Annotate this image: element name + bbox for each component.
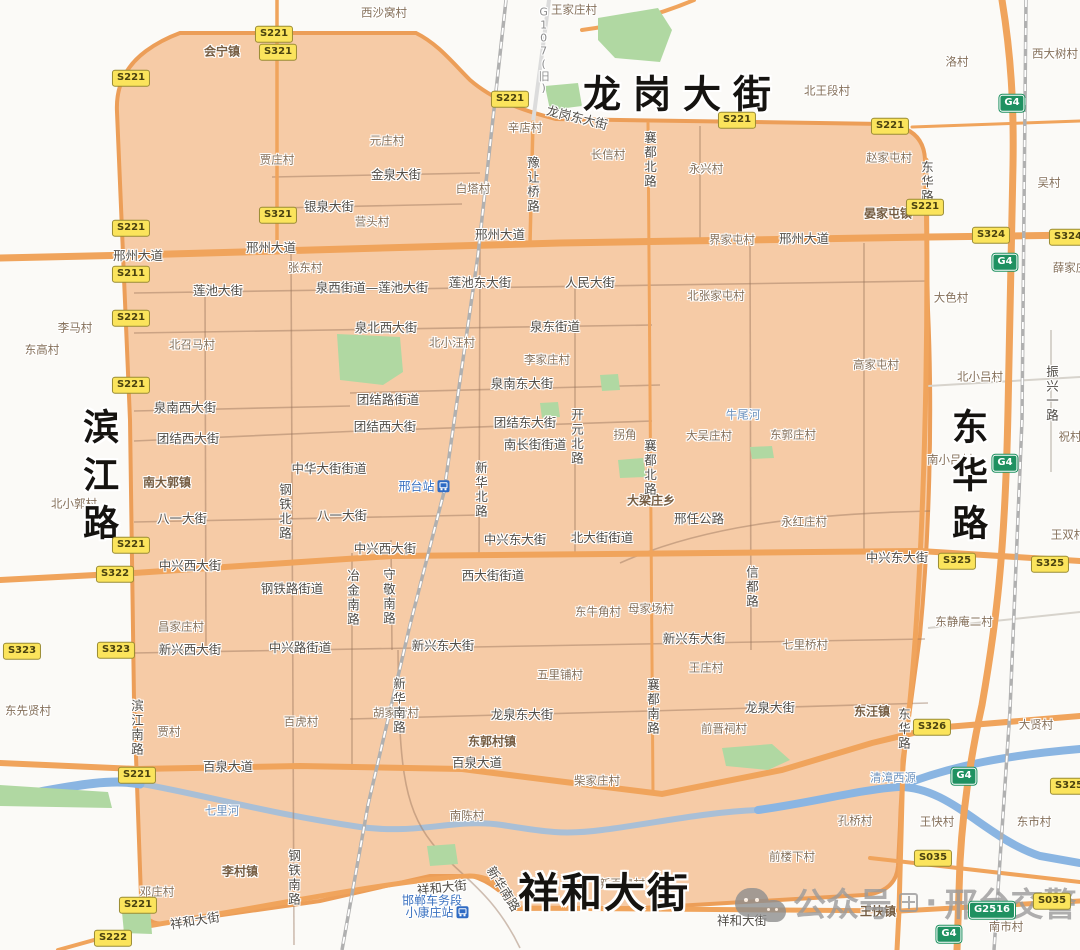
miniprogram-icon [899,893,918,912]
village-label: 李马村 [58,322,93,335]
village-label: 拐角 [614,429,637,442]
street-label: 钢铁路街道 [261,582,324,596]
watermark-text-1: 公众号 [793,878,892,926]
street-label-vertical: G107(旧) [537,6,549,95]
village-label: 母家场村 [628,603,674,616]
street-label: 邢州大道 [475,228,525,242]
map-labels-layer: 西沙窝村王家庄村北王段村洛村西大树村吴村辛店村元庄村贾庄村长信村永兴村白塔村赵家… [0,0,1080,950]
road-badge-S221: S221 [112,70,150,87]
road-badge-S324: S324 [1049,229,1080,246]
village-label: 七里桥村 [782,639,828,652]
village-label: 东静庵二村 [935,616,993,629]
village-label: 大吴庄村 [686,430,732,443]
street-label-vertical: 滨江南路 [129,699,143,757]
village-label: 百虎村 [284,716,319,729]
street-label: 邢州大道 [779,232,829,246]
road-badge-S222: S222 [94,930,132,947]
street-label-vertical: 冶金南路 [345,569,359,627]
street-label-vertical: 振兴一路 [1044,365,1058,423]
street-label: 中兴东大街 [866,551,929,565]
street-label: 中华大街街道 [291,462,366,476]
road-badge-S221: S221 [112,220,150,237]
village-label: 前晋祠村 [701,723,747,736]
street-label: 银泉大街 [304,200,354,214]
road-badge-S221: S221 [491,91,529,108]
landmark-label: 滨江路 [77,408,117,552]
village-label: 前楼下村 [769,851,815,864]
street-label: 团结西大街 [157,432,220,446]
station-label: 小康庄站 [405,906,468,919]
village-label: 东牛角村 [575,606,621,619]
village-label: 西沙窝村 [361,7,407,20]
road-badge-S326: S326 [913,719,951,736]
village-label: 昌家庄村 [158,621,204,634]
watermark-dot: · [925,883,938,922]
village-label: 北张家屯村 [687,290,745,303]
village-label: 东郭庄村 [770,429,816,442]
road-badge-S221: S221 [255,26,293,43]
street-label: 泉南东大街 [491,377,554,391]
village-label: 王家庄村 [551,4,597,17]
road-badge-G2516: G2516 [969,902,1015,919]
road-badge-G4: G4 [951,768,976,785]
street-label: 泉西街道—莲池大街 [316,281,429,295]
village-label: 东市村 [1017,816,1052,829]
train-station-icon [457,906,469,918]
road-badge-S325: S325 [1050,778,1080,795]
village-label: 祝村 [1059,431,1080,444]
road-badge-S322: S322 [96,566,134,583]
street-label-vertical: 守敬南路 [381,568,395,626]
road-badge-S323: S323 [3,643,41,660]
road-badge-G4: G4 [992,455,1017,472]
road-badge-S221: S221 [118,767,156,784]
village-label: 北召马村 [169,339,215,352]
street-label: 邢州大道 [113,249,163,263]
village-label: 赵家屯村 [866,152,912,165]
village-label: 高家屯村 [853,359,899,372]
street-label: 南长街街道 [504,438,567,452]
road-badge-S325: S325 [1031,556,1069,573]
street-label: 新华南路 [484,864,522,914]
road-badge-S221: S221 [112,310,150,327]
village-label: 五里铺村 [537,669,583,682]
village-label: 西大树村 [1032,48,1078,61]
street-label-vertical: 新华南路 [391,677,405,735]
street-label: 中兴西大街 [354,542,417,556]
village-label: 李家庄村 [524,354,570,367]
road-badge-S035: S035 [1033,893,1071,910]
street-label: 新兴东大街 [412,639,475,653]
town-label: 李村镇 [222,865,258,878]
street-label-vertical: 开元北路 [569,408,583,466]
road-badge-S221: S221 [112,537,150,554]
street-label: 邢州大道 [246,241,296,255]
village-label: 孔桥村 [838,815,873,828]
village-label: 东先贤村 [5,705,51,718]
village-label: 柴家庄村 [574,775,620,788]
street-label: 百泉大道 [452,756,502,770]
village-label: 永红庄村 [781,516,827,529]
landmark-label: 祥和大街 [518,871,690,917]
road-badge-S221: S221 [871,118,909,135]
village-label: 王庄村 [689,662,724,675]
road-badge-S325: S325 [938,553,976,570]
street-label: 泉南西大街 [154,401,217,415]
village-label: 张东村 [288,262,323,275]
street-label: 百泉大道 [203,760,253,774]
village-label: 界家屯村 [709,234,755,247]
street-label: 泉东街道 [530,320,580,334]
village-label: 东高村 [25,344,60,357]
street-label-vertical: 襄都南路 [645,678,659,736]
village-label: 贾村 [158,726,181,739]
village-label: 长信村 [591,149,626,162]
street-label: 中兴西大街 [159,559,222,573]
village-label: 北小汪村 [429,337,475,350]
road-badge-S221: S221 [906,199,944,216]
road-badge-G4: G4 [936,926,961,943]
village-label: 吴村 [1038,177,1061,190]
road-badge-G4: G4 [999,95,1024,112]
village-label: 王快村 [920,816,955,829]
street-label-vertical: 新华北路 [473,461,487,519]
street-label-vertical: 东华路 [919,160,933,204]
village-label: 大贤村 [1019,719,1054,732]
street-label: 龙泉东大街 [491,708,554,722]
train-station-icon [438,480,450,492]
street-label: 新兴西大街 [159,643,222,657]
street-label: 泉北西大街 [355,321,418,335]
wechat-chat-icon-small [760,900,786,922]
street-label: 团结西大街 [354,420,417,434]
street-label: 新兴东大街 [663,632,726,646]
road-badge-S221: S221 [119,897,157,914]
watermark: 公众号 · 邢台交警 [735,878,1077,926]
street-label-vertical: 信都路 [744,565,758,609]
station-label: 邢台站 [398,480,449,493]
road-badge-S221: S221 [718,112,756,129]
road-badge-S035: S035 [914,850,952,867]
village-label: 永兴村 [689,163,724,176]
village-label: 王双村 [1051,529,1080,542]
road-badge-S221: S221 [112,377,150,394]
street-label-vertical: 襄都北路 [642,131,656,189]
town-label: 东汪镇 [854,705,890,718]
street-label: 邢任公路 [674,512,724,526]
road-badge-S324: S324 [972,227,1010,244]
street-label-vertical: 豫让桥路 [525,156,539,214]
village-label: 薛家庄 [1053,262,1080,275]
town-label: 晏家屯镇 [864,207,912,220]
water-label: 牛尾河 [726,409,761,422]
landmark-label: 龙岗大街 [583,74,783,117]
village-label: 贾庄村 [260,154,295,167]
road-badge-S321: S321 [259,207,297,224]
road-badge-S211: S211 [112,266,150,283]
street-label: 八一大街 [317,509,367,523]
street-label-vertical: 钢铁北路 [277,483,291,541]
town-label: 南大郭镇 [143,476,191,489]
street-label-vertical: 襄都北路 [642,439,656,497]
village-label: 北小吕村 [957,371,1003,384]
street-label: 中兴东大街 [484,533,547,547]
road-badge-G4: G4 [992,254,1017,271]
village-label: 营头村 [355,216,390,229]
street-label: 莲池大街 [193,284,243,298]
village-label: 南陈村 [450,810,485,823]
landmark-label: 东华路 [946,408,986,552]
road-badge-S323: S323 [97,642,135,659]
village-label: 元庄村 [370,135,405,148]
street-label-vertical: 东华路 [896,707,910,751]
street-label: 团结东大街 [494,416,557,430]
village-label: 白塔村 [456,183,491,196]
village-label: 辛店村 [508,122,543,135]
street-label: 八一大街 [157,512,207,526]
street-label: 祥和大街 [169,910,221,932]
street-label: 中兴路街道 [269,641,332,655]
street-label: 人民大街 [565,276,615,290]
street-label: 团结路街道 [357,393,420,407]
village-label: 洛村 [946,56,969,69]
street-label: 莲池东大街 [449,276,512,290]
water-label: 七里河 [205,805,240,818]
map-canvas[interactable]: 西沙窝村王家庄村北王段村洛村西大树村吴村辛店村元庄村贾庄村长信村永兴村白塔村赵家… [0,0,1080,950]
village-label: 北王段村 [804,85,850,98]
street-label: 西大街街道 [462,569,525,583]
street-label: 北大街街道 [571,531,634,545]
road-badge-S321: S321 [259,44,297,61]
town-label: 会宁镇 [204,45,240,58]
street-label: 金泉大街 [371,168,421,182]
street-label-vertical: 钢铁南路 [286,849,300,907]
village-label: 大色村 [934,292,969,305]
street-label: 龙泉大街 [745,701,795,715]
water-label: 清漳西源 [870,772,916,785]
town-label: 东郭村镇 [468,735,516,748]
